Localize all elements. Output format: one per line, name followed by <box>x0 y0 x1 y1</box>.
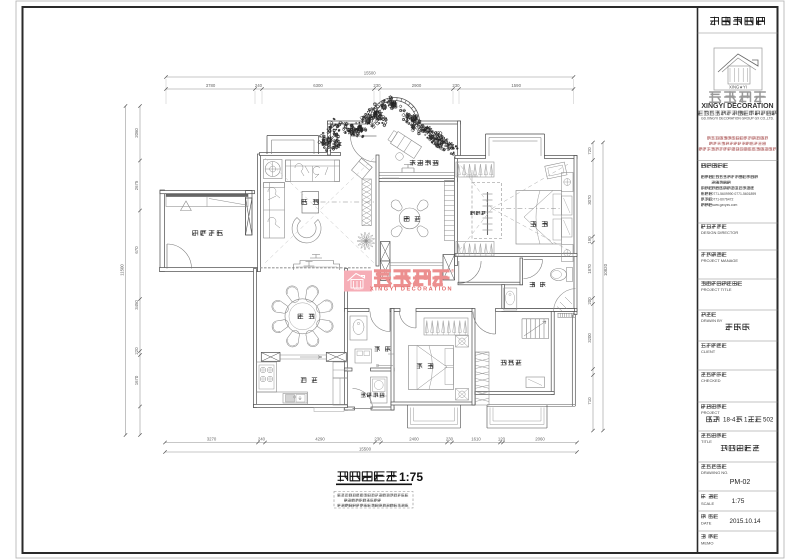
svg-text:CLIENT: CLIENT <box>701 349 716 354</box>
svg-text:502: 502 <box>763 417 774 424</box>
svg-text:230: 230 <box>446 437 454 442</box>
svg-text:15500: 15500 <box>364 71 377 76</box>
svg-text:240: 240 <box>258 437 266 442</box>
svg-text:1590: 1590 <box>511 83 521 88</box>
svg-text:3070: 3070 <box>587 195 592 205</box>
svg-text:SCALE: SCALE <box>701 501 714 506</box>
svg-text:4290: 4290 <box>315 437 325 442</box>
svg-text:2015.10.14: 2015.10.14 <box>730 518 762 525</box>
svg-text:230: 230 <box>373 83 381 88</box>
svg-text:PM-02: PM-02 <box>730 479 751 486</box>
svg-text:2675: 2675 <box>134 180 139 190</box>
svg-text:PROJECT TITLE: PROJECT TITLE <box>701 287 732 292</box>
svg-text:MEMO: MEMO <box>701 541 713 546</box>
svg-text:2900: 2900 <box>412 83 422 88</box>
svg-text:670: 670 <box>134 246 139 254</box>
svg-text:3450: 3450 <box>134 300 139 310</box>
svg-text:2060: 2060 <box>134 128 139 138</box>
svg-text:120: 120 <box>498 437 506 442</box>
svg-text:DRAWING NO.: DRAWING NO. <box>701 470 728 475</box>
svg-text:CHECKED: CHECKED <box>701 378 721 383</box>
svg-text:15500: 15500 <box>359 446 372 451</box>
svg-text:1610: 1610 <box>471 437 481 442</box>
svg-text:DATE: DATE <box>701 521 712 526</box>
svg-text:XINGYI DECORATION: XINGYI DECORATION <box>701 103 773 110</box>
svg-text:3780: 3780 <box>206 83 216 88</box>
svg-text:XINGYI DECORATION: XINGYI DECORATION <box>370 287 453 293</box>
svg-text:18-4: 18-4 <box>723 417 736 424</box>
svg-text:XING★YI: XING★YI <box>729 85 747 90</box>
svg-text:1670: 1670 <box>134 375 139 385</box>
svg-text:1:75: 1:75 <box>732 498 745 505</box>
svg-text:230: 230 <box>452 83 460 88</box>
svg-text:www.gzxyzs.com: www.gzxyzs.com <box>712 203 738 207</box>
svg-text:710: 710 <box>587 397 592 405</box>
svg-text:PROJECT MANAGE: PROJECT MANAGE <box>701 258 738 263</box>
svg-text:220: 220 <box>134 347 139 355</box>
svg-text:GD.XINGYI DECORATION GROUP GX: GD.XINGYI DECORATION GROUP GX CO.,LTD. <box>701 117 774 121</box>
svg-text:1: 1 <box>744 417 748 424</box>
svg-text:TITLE: TITLE <box>701 439 712 444</box>
svg-text:0771-6076472: 0771-6076472 <box>712 197 734 201</box>
svg-text:230: 230 <box>374 437 382 442</box>
svg-text:0771-5609990 0771-5601899: 0771-5609990 0771-5601899 <box>712 192 757 196</box>
svg-text:720: 720 <box>587 147 592 155</box>
svg-text:2060: 2060 <box>535 437 545 442</box>
svg-text:DRAWN BY: DRAWN BY <box>701 318 723 323</box>
svg-text:11500: 11500 <box>120 264 125 276</box>
svg-text:PROJECT: PROJECT <box>701 410 720 415</box>
svg-text:1870: 1870 <box>587 264 592 274</box>
svg-text:6300: 6300 <box>313 83 323 88</box>
svg-text:DESIGN DIRECTOR: DESIGN DIRECTOR <box>701 230 738 235</box>
svg-text:2400: 2400 <box>409 437 419 442</box>
svg-text:200: 200 <box>587 297 592 305</box>
svg-text:190: 190 <box>587 236 592 244</box>
svg-text:3270: 3270 <box>207 437 217 442</box>
svg-text:1:75: 1:75 <box>399 470 423 484</box>
svg-text:XINGYI: XINGYI <box>354 287 363 291</box>
svg-text:10820: 10820 <box>603 263 608 276</box>
svg-text:240: 240 <box>255 83 263 88</box>
svg-text:3200: 3200 <box>587 333 592 343</box>
